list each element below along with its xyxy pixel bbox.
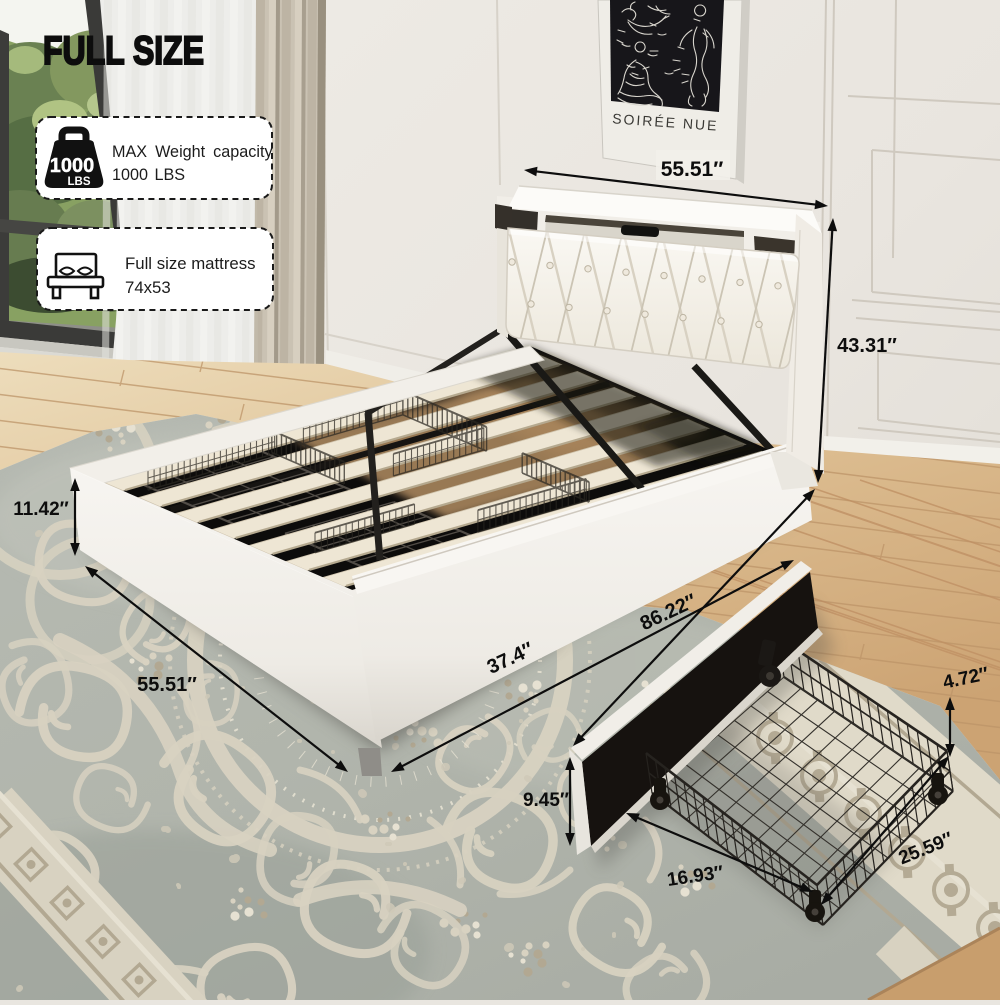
svg-text:1000 LBS: 1000 LBS — [112, 166, 185, 184]
svg-text:11.42″: 11.42″ — [13, 499, 69, 520]
svg-text:1000: 1000 — [50, 155, 95, 177]
svg-text:55.51″: 55.51″ — [137, 674, 197, 696]
svg-text:9.45″: 9.45″ — [523, 790, 569, 811]
svg-text:LBS: LBS — [68, 176, 91, 188]
svg-text:74x53: 74x53 — [125, 278, 171, 297]
svg-text:55.51″: 55.51″ — [661, 158, 724, 181]
svg-text:MAX Weight capacity: MAX Weight capacity — [112, 143, 273, 161]
svg-text:FULL SIZE: FULL SIZE — [43, 29, 204, 73]
svg-text:43.31″: 43.31″ — [837, 335, 897, 357]
svg-text:Full size mattress: Full size mattress — [125, 254, 256, 273]
